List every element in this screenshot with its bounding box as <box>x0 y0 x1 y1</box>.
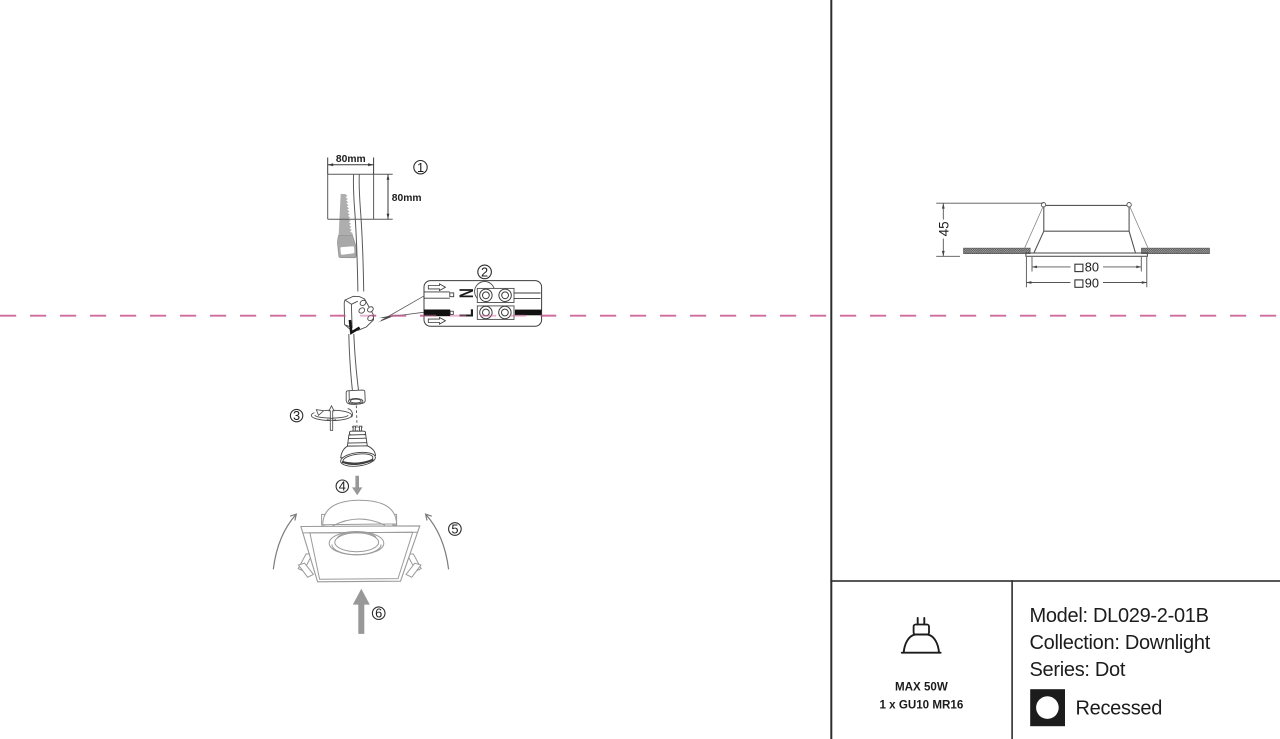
svg-text:Collection: Downlight: Collection: Downlight <box>1030 632 1211 654</box>
svg-text:5: 5 <box>451 522 458 537</box>
svg-text:Series: Dot: Series: Dot <box>1030 659 1126 681</box>
svg-text:80mm: 80mm <box>336 154 366 165</box>
svg-text:45: 45 <box>936 221 951 236</box>
svg-text:1: 1 <box>417 160 424 175</box>
svg-text:80mm: 80mm <box>392 193 422 204</box>
svg-text:3: 3 <box>293 408 300 423</box>
svg-text:N: N <box>456 288 478 298</box>
svg-text:80: 80 <box>1085 260 1099 275</box>
svg-text:Recessed: Recessed <box>1076 698 1163 720</box>
svg-text:2: 2 <box>481 265 488 280</box>
svg-text:1 x GU10 MR16: 1 x GU10 MR16 <box>880 698 964 711</box>
svg-text:90: 90 <box>1085 275 1099 290</box>
svg-text:Model: DL029-2-01B: Model: DL029-2-01B <box>1030 605 1209 627</box>
svg-text:MAX 50W: MAX 50W <box>895 680 948 693</box>
svg-text:6: 6 <box>375 606 382 621</box>
svg-text:4: 4 <box>339 479 346 494</box>
